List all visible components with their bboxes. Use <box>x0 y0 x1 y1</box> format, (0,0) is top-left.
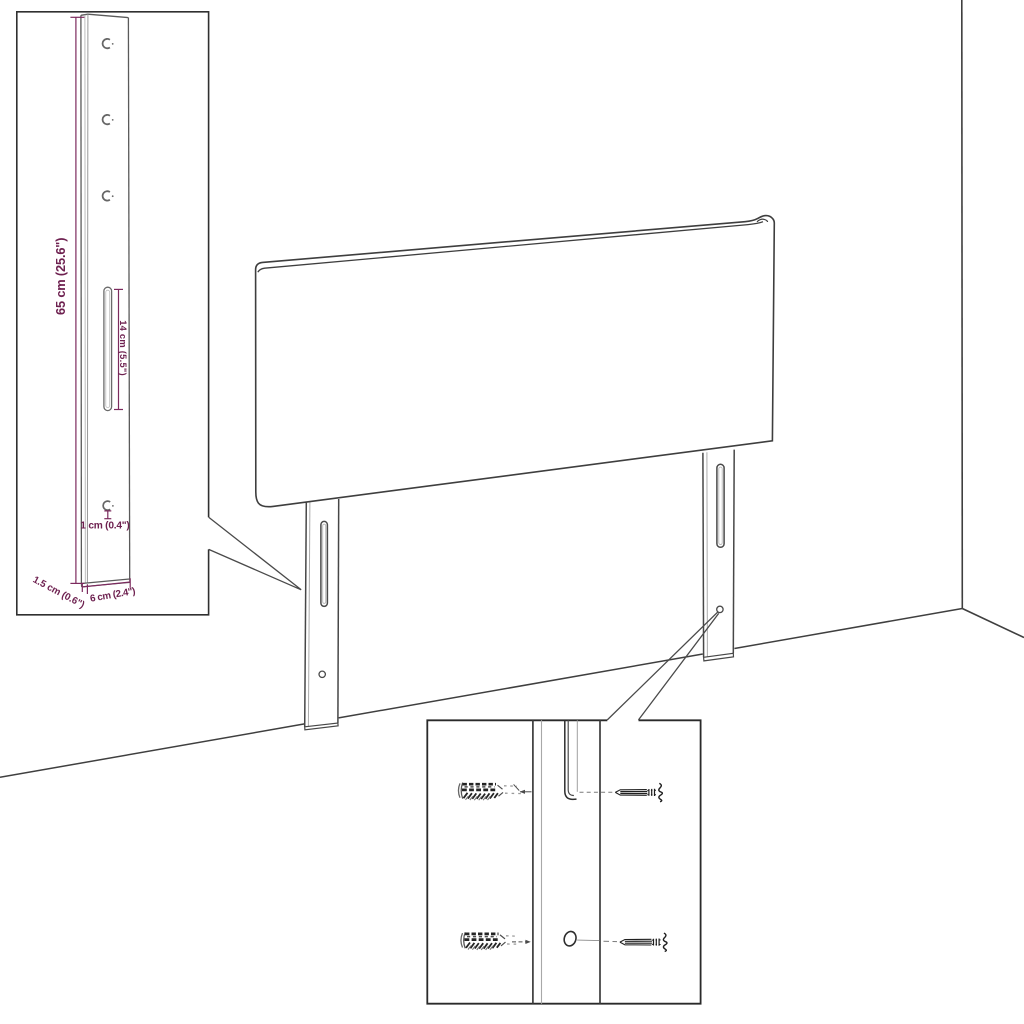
svg-text:65 cm (25.6"): 65 cm (25.6") <box>53 238 68 316</box>
svg-text:14 cm (5.5"): 14 cm (5.5") <box>118 320 128 376</box>
svg-text:1 cm (0.4"): 1 cm (0.4") <box>80 520 130 531</box>
